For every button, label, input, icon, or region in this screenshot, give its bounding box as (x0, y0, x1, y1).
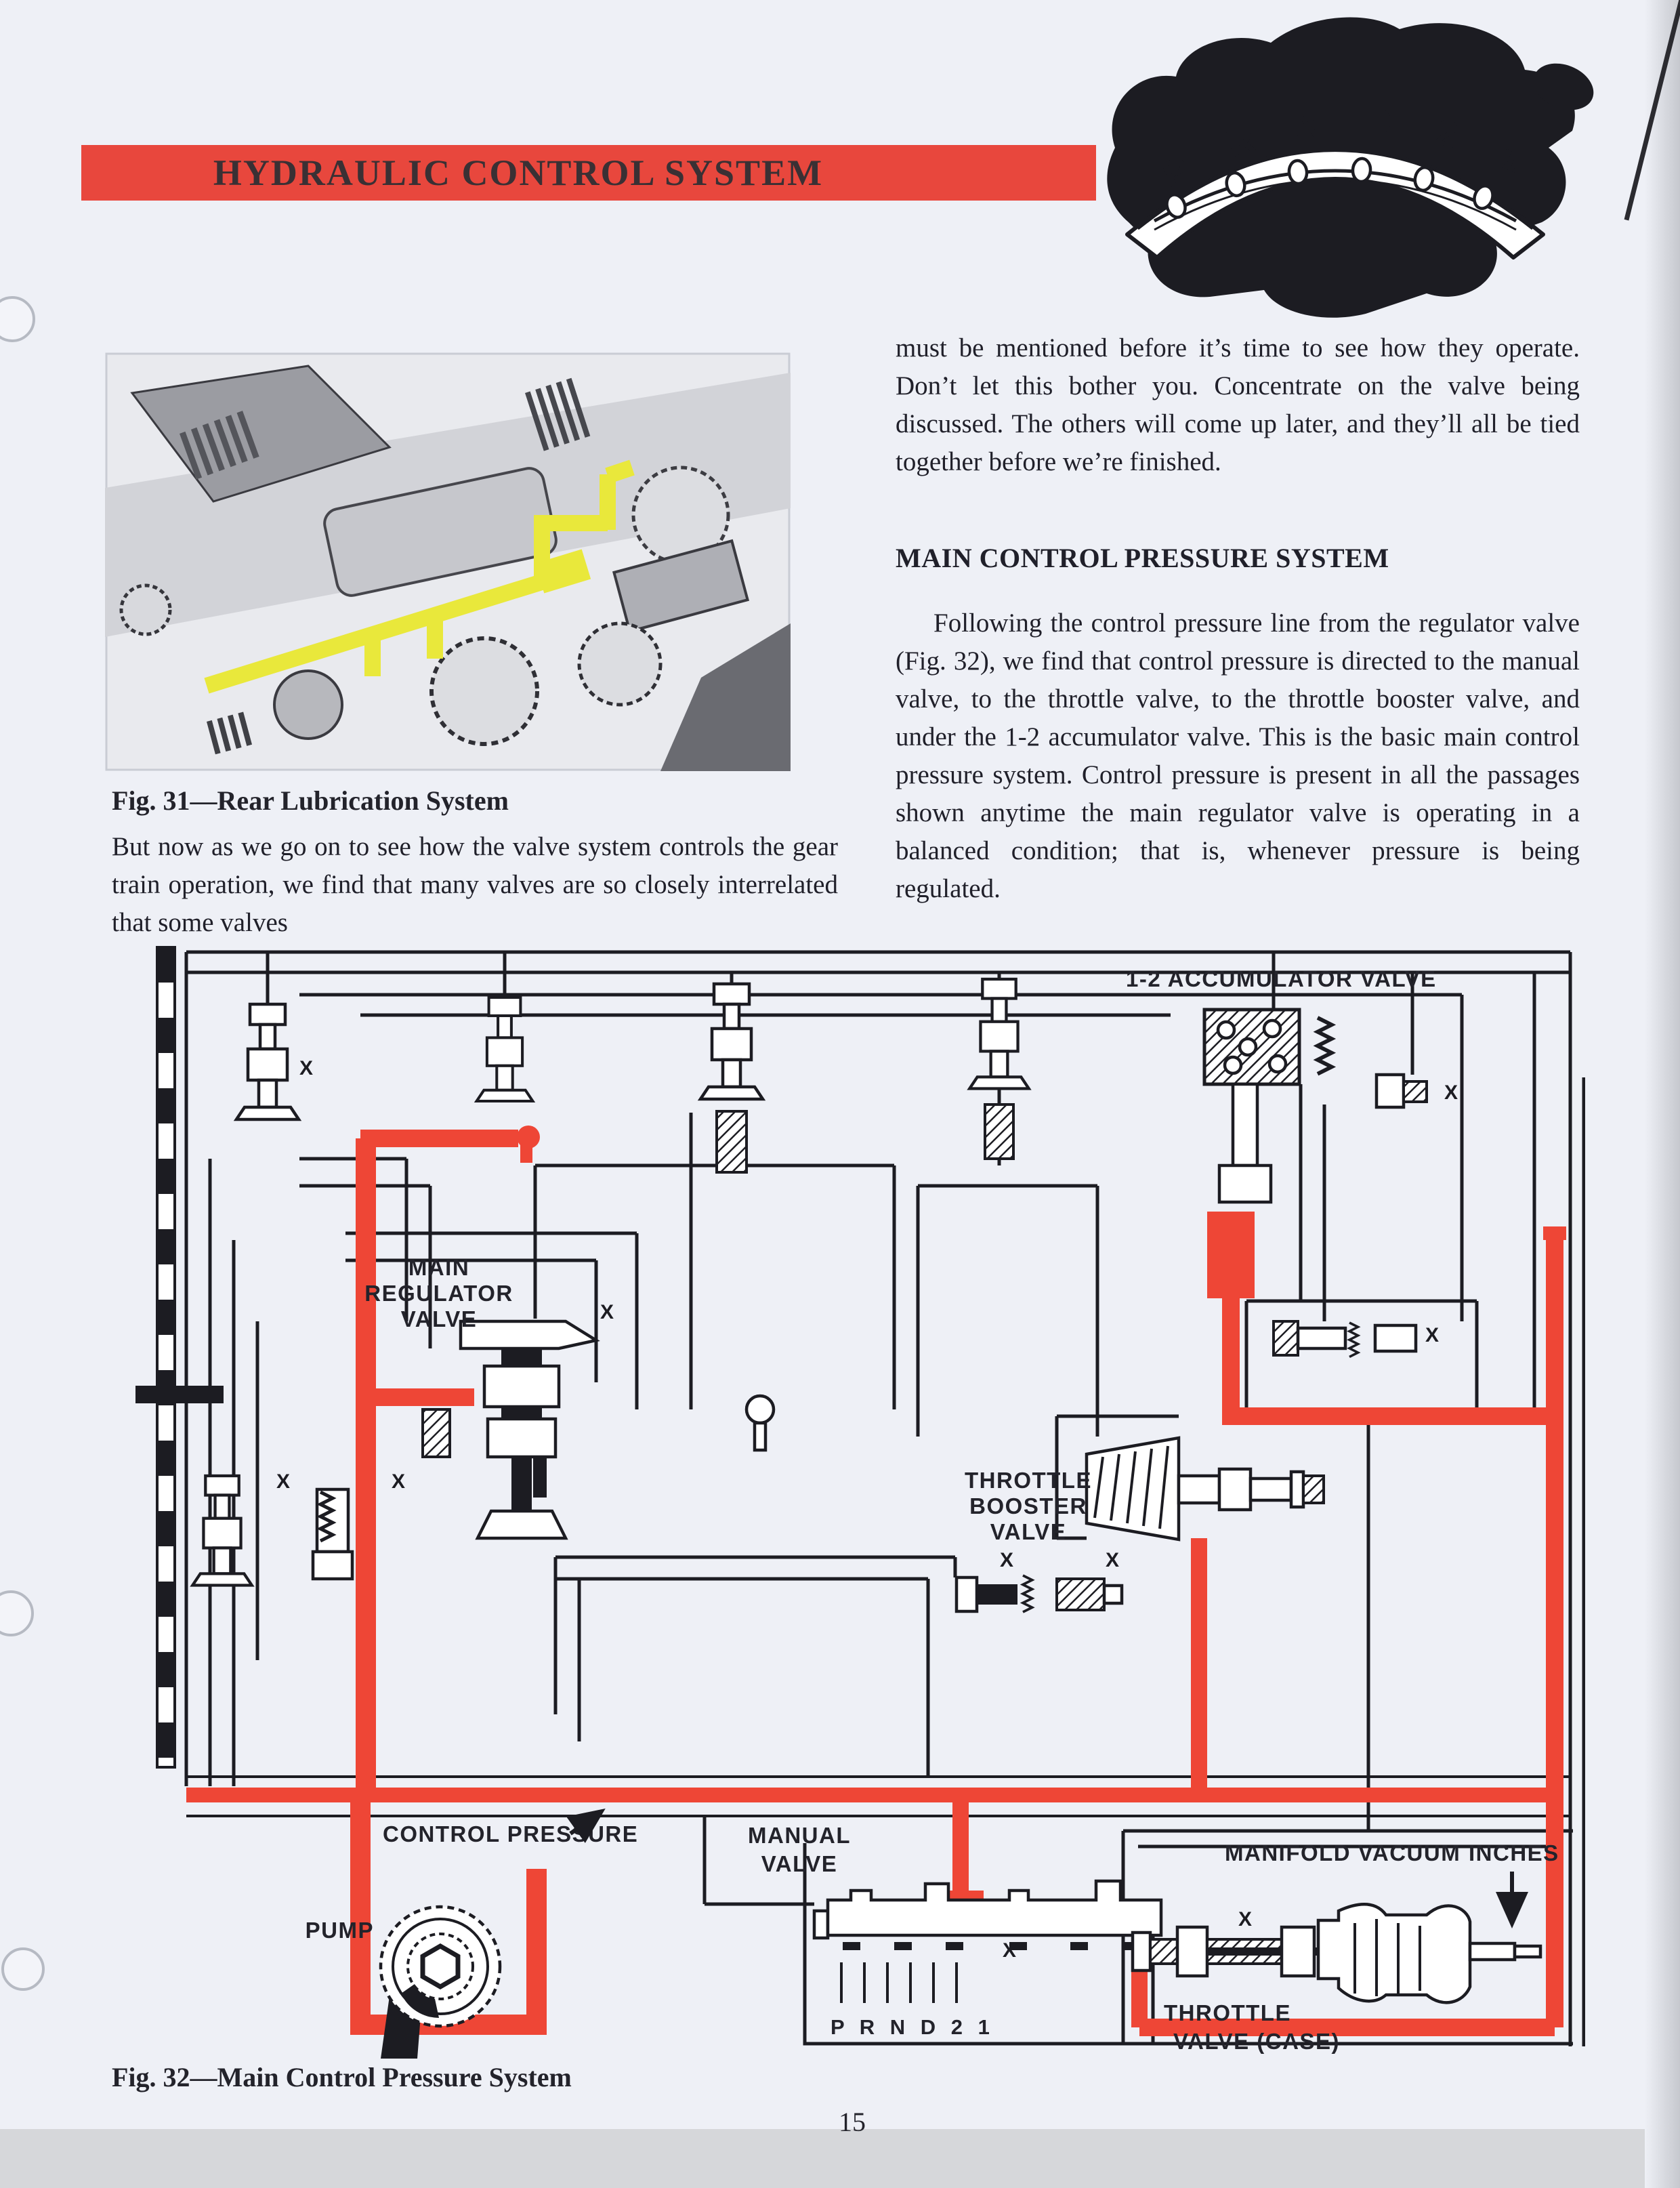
striped-reference-bar (157, 947, 175, 1767)
main-regulator-valve-glyph (423, 1321, 596, 1538)
section-heading: MAIN CONTROL PRESSURE SYSTEM (896, 542, 1580, 574)
fig31-illustration (105, 352, 791, 771)
shift-quadrant-badge: P R N D 2 1 (1074, 5, 1597, 324)
label-throttle-booster: BOOSTER (969, 1493, 1087, 1519)
label-throttle-valve: THROTTLE (1164, 2000, 1291, 2025)
x-marker: X (299, 1057, 313, 1079)
x-marker: X (1000, 1549, 1013, 1571)
label-pump: PUMP (306, 1918, 374, 1943)
label-manual-valve: MANUAL (748, 1823, 851, 1848)
label-main-regulator: MAIN (408, 1255, 469, 1280)
page-number: 15 (839, 2106, 866, 2138)
scan-right-shadow (1645, 0, 1680, 2188)
valve-spring (985, 1105, 1013, 1159)
manual-valve-glyph (814, 1881, 1161, 2003)
pressure-relief-valve (1274, 1321, 1416, 1357)
pump-glyph (381, 1907, 500, 2059)
x-marker: X (1238, 1908, 1252, 1931)
shift-letter: D (1364, 99, 1393, 143)
fig32-caption: Fig. 32—Main Control Pressure System (112, 2061, 925, 2093)
label-manifold-vacuum: MANIFOLD VACUUM (1225, 1840, 1461, 1865)
check-ball-stem (755, 1423, 765, 1450)
label-control-pressure: CONTROL PRESSURE (383, 1821, 638, 1846)
label-shift-positions: P R N D 2 1 (831, 2015, 994, 2039)
page-title: HYDRAULIC CONTROL SYSTEM (169, 145, 867, 201)
scanned-manual-page: HYDRAULIC CONTROL SYSTEM P R N D 2 (0, 0, 1680, 2188)
x-marker: X (1003, 1939, 1016, 1962)
x-marker: X (276, 1470, 290, 1493)
scan-bottom-edge (0, 2129, 1680, 2188)
accumulator-valve-glyph (1204, 1010, 1332, 1202)
shift-valve (700, 984, 763, 1099)
right-column-paragraph-2: Following the control pressure line from… (896, 604, 1580, 908)
label-manual-valve: VALVE (761, 1851, 838, 1876)
throttle-valve-case-glyph (1133, 1904, 1540, 2002)
right-column-paragraph-1: must be mentioned before it’s time to se… (896, 329, 1580, 481)
downshift-valve (192, 1476, 251, 1586)
label-throttle-valve: VALVE (CASE) (1173, 2029, 1340, 2054)
cutback-valve (1377, 1075, 1427, 1107)
fig31-caption: Fig. 31—Rear Lubrication System (112, 785, 843, 817)
x-marker: X (392, 1470, 405, 1493)
spring-valve (313, 1489, 352, 1579)
label-accumulator-valve: 1-2 ACCUMULATOR VALVE (1126, 966, 1437, 991)
x-marker: X (1106, 1549, 1119, 1571)
x-marker: X (1444, 1081, 1458, 1104)
check-ball (747, 1396, 774, 1423)
label-throttle-booster: THROTTLE (965, 1468, 1092, 1493)
x-marker: X (600, 1301, 614, 1323)
shift-valve (477, 997, 533, 1101)
binder-hole (1, 1947, 45, 1991)
hydraulic-passage-network (186, 952, 1584, 2046)
shift-valve (236, 1004, 299, 1119)
label-main-regulator: REGULATOR (364, 1281, 513, 1306)
x-marker: X (1425, 1324, 1439, 1346)
label-throttle-booster: VALVE (990, 1519, 1067, 1544)
label-inches: INCHES (1469, 1840, 1559, 1865)
throttle-booster-valve-glyph (1087, 1438, 1324, 1540)
binder-hole (0, 1590, 34, 1636)
valve-spring (717, 1111, 747, 1172)
binder-hole (0, 296, 35, 342)
fig32-diagram: 1-2 ACCUMULATOR VALVE MAIN REGULATOR VAL… (122, 942, 1585, 2060)
label-main-regulator: VALVE (401, 1306, 478, 1332)
throttle-modulator-valve (957, 1575, 1122, 1612)
left-column-paragraph: But now as we go on to see how the valve… (112, 828, 838, 942)
